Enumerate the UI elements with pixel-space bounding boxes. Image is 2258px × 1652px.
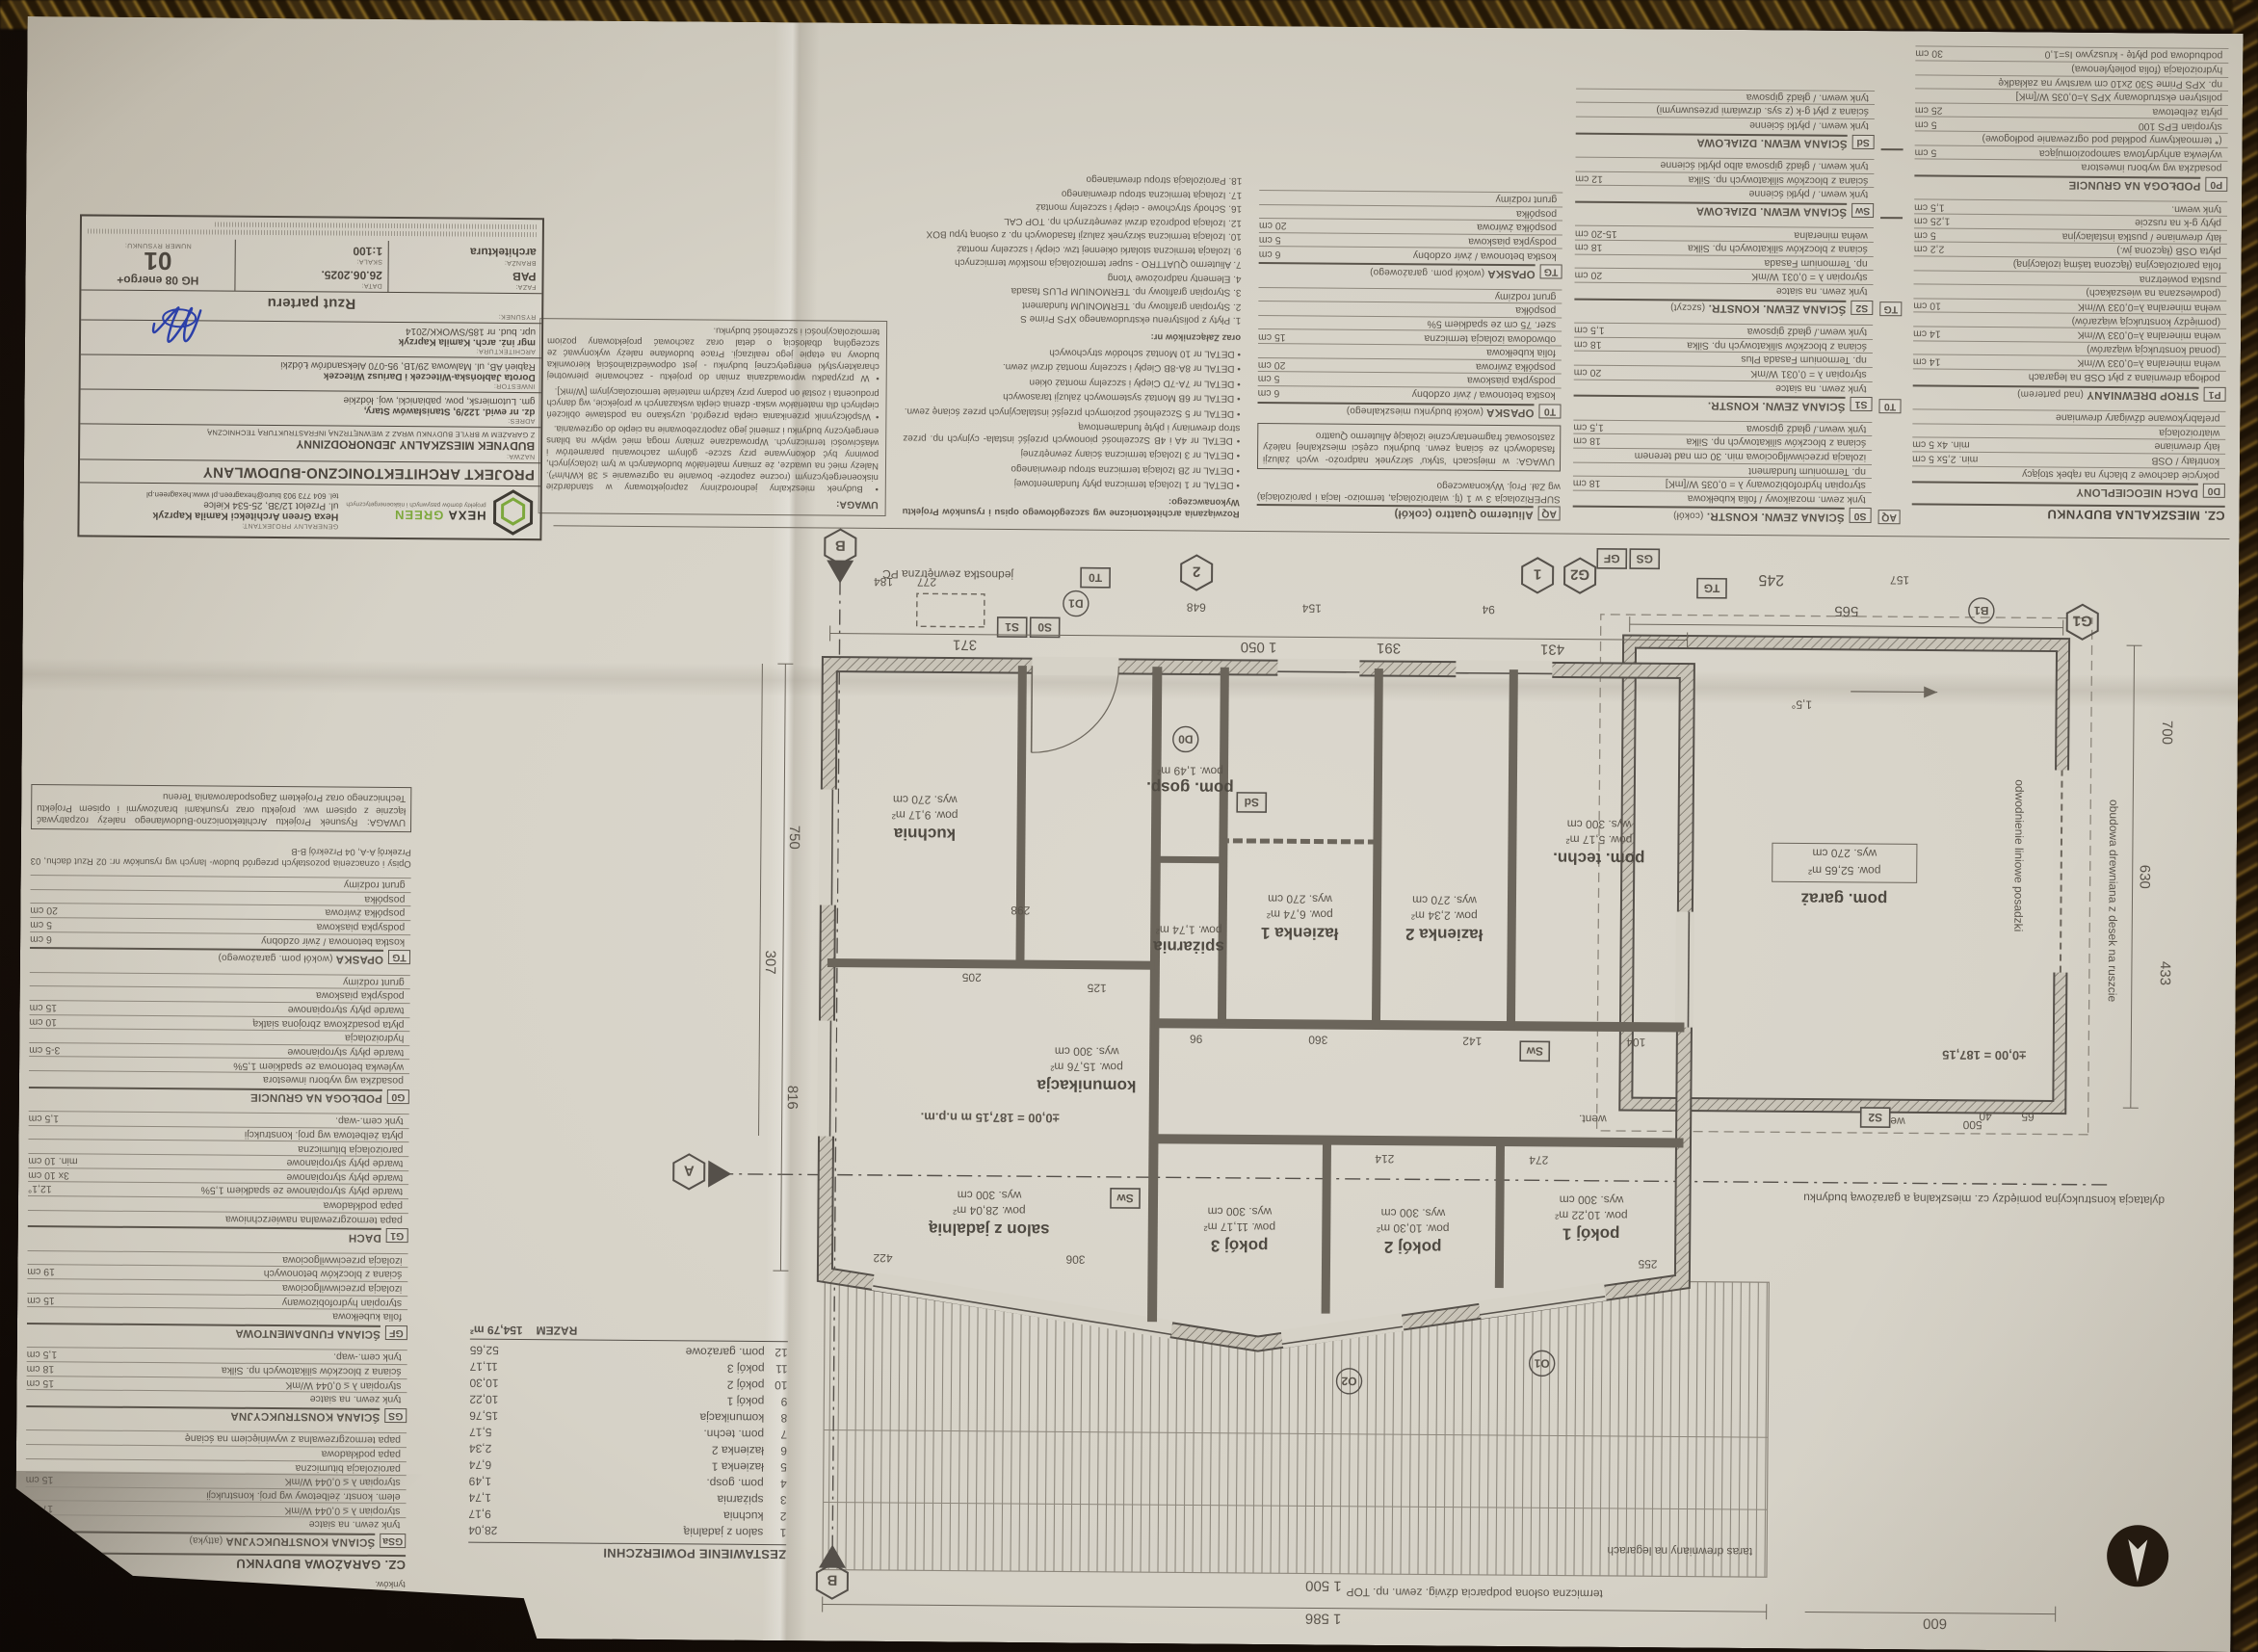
legend-tag: Sw <box>1851 203 1874 218</box>
legend-layer: hydroizolacja (folia polietylenowa) <box>1915 60 2228 76</box>
svg-text:360: 360 <box>1308 1033 1327 1046</box>
detail-item: • DETAL nr 5 Szczelność poziomych przejś… <box>903 404 1240 418</box>
table-row: 5 łazienka 1 6,74 <box>469 1457 787 1477</box>
legend-block: D0 DACH NIEOCIEPLONY pokrycie dachowe z … <box>1912 409 2226 500</box>
legend-layer: podsypka piaskowa5 cm <box>30 917 410 934</box>
svg-text:G1: G1 <box>2073 613 2092 629</box>
drawing-sheet: taras drewniany na legarach termiczna os… <box>14 16 2243 1652</box>
legend-layer: wełna mineralna15-20 cm <box>1575 225 1874 242</box>
legend-layer: podłoga drewniana z płyt OSB na legarach <box>1913 368 2226 384</box>
svg-text:GF: GF <box>1604 552 1620 565</box>
svg-text:dylatacja konstrukcyjna pomięd: dylatacja konstrukcyjna pomiędzy cz. mie… <box>1803 1192 2165 1208</box>
attachment-item: 9. Izolacja termiczna stolarki okiennej … <box>905 242 1242 256</box>
title-block: HEXA GREEN projekty domów pasywnych i ni… <box>77 214 544 540</box>
svg-text:łazienka 2: łazienka 2 <box>1405 925 1483 944</box>
legend-layer: tynk wewn.1,5 cm <box>1914 199 2227 216</box>
table-row: 11 pokój 3 11,17 <box>470 1359 788 1378</box>
svg-text:pow. 6,74 m²: pow. 6,74 m² <box>1267 907 1333 922</box>
legend-layer: pospółka żwirowa20 cm <box>1258 357 1562 374</box>
legend-layer: podsypka piaskowa5 cm <box>1258 371 1562 387</box>
svg-text:pom. techn.: pom. techn. <box>1553 849 1645 868</box>
svg-text:jednostka zewnętrzna PC: jednostka zewnętrzna PC <box>882 567 1015 582</box>
detail-notes: Rozwiązania architektoniczne wg szczegół… <box>903 170 1243 519</box>
legend-layer: styropian λ = 0,031 W/mK20 cm <box>1574 365 1873 381</box>
legend-tag: TG <box>388 950 410 964</box>
legend-ref-tag: TG <box>1879 302 1902 316</box>
attachment-item: 2. Styropian grafitowy np. TERMONIUM fun… <box>904 298 1241 312</box>
note-1: 1. Ściany należy murować zgodnie z zalec… <box>25 1604 406 1630</box>
svg-text:pom. gosp.: pom. gosp. <box>1146 778 1234 798</box>
legend-layer: tynk zewn. mozaikowy / folia kubełkowa <box>1573 489 1872 506</box>
cladding-label: obudowa drewniana z desek na ruszcie <box>2106 800 2121 1003</box>
svg-text:pokój 3: pokój 3 <box>1211 1237 1269 1255</box>
legend-layer: płyta żelbetowa25 cm <box>1915 102 2228 118</box>
legend-layer: twarde płyty styropianowemin. 10 cm <box>28 1153 408 1170</box>
dim-label: 391 <box>1377 640 1401 656</box>
svg-text:306: 306 <box>1065 1252 1085 1266</box>
legend-layer: wełna mineralna λ=0,033 W/mK14 cm <box>1913 327 2226 343</box>
table-row: 6 łazienka 2 2,34 <box>469 1441 787 1460</box>
uwaga-box: UWAGA: w miejscach 'styku' skrzynek nadp… <box>1257 423 1561 471</box>
svg-text:255: 255 <box>1638 1257 1657 1271</box>
area-table-title: ZESTAWIENIE POWIERZCHNI <box>468 1542 786 1562</box>
legend-layer: płyta OSB (łączona jw.)2,2 cm <box>1914 242 2227 258</box>
svg-text:274: 274 <box>1529 1153 1548 1167</box>
svg-text:184: 184 <box>874 575 893 589</box>
svg-text:salon z jadalnią: salon z jadalnią <box>928 1219 1049 1239</box>
legend-layer: hydroizolacja <box>29 1028 409 1045</box>
legend-layer: polistyren ekstrudowany XPS λ=0,035 W/[m… <box>1915 89 2228 105</box>
legend-layer: tynk wewn./ gładź gipsowa1,5 cm <box>1573 419 1872 435</box>
legend-layer: paroizolacja bitumiczna <box>26 1458 407 1476</box>
legend-layer: ściana z bloczków silikatowych np. Silka… <box>1573 433 1872 450</box>
legend-block: P1 STROP DREWNIANY (nad parterem) podłog… <box>1913 199 2228 403</box>
legend-block: T0 S1 ŚCIANA ZEWN. KONSTR. tynk zewn. na… <box>1573 323 1873 413</box>
legend-layer: papa termozgrzewalna z wywinięciem na śc… <box>26 1429 407 1447</box>
legend-layer: twarde płyty styropianowe3-5 cm <box>29 1042 409 1060</box>
legend-layer: folia paroizolacyjna (łączona taśmą izol… <box>1914 255 2227 272</box>
detail-item: • DETAL nr 10 Montaż schodów strychowych <box>904 344 1241 358</box>
legend-layer: ściana z bloczków silikatowych np. Silka… <box>1575 170 1874 187</box>
svg-text:648: 648 <box>1186 600 1205 614</box>
attachment-item: 7. Aliutermo QUATTRO - super termoizolac… <box>905 255 1242 270</box>
legend-block: GSa ŚCIANA KONSTRUKCYJNA (attyka) tynk z… <box>25 1429 407 1549</box>
terrace-label: taras drewniany na legarach <box>1607 1544 1752 1559</box>
meta-grid: FAZA: PAB BRANŻA: architektura DATA: 26.… <box>81 238 541 293</box>
microprint-line <box>88 228 537 237</box>
legend-layer: folia kubełkowa <box>27 1306 407 1324</box>
legend-layer: twarde płyty styropianowe ze spadkiem 1,… <box>28 1181 408 1198</box>
legend-tag: Sd <box>1852 134 1875 148</box>
legend-tag: AQ <box>1538 506 1561 520</box>
svg-text:245: 245 <box>1758 571 1784 588</box>
legend-block: Sd ŚCIANA WEWN. DZIAŁOWA tynk wewn. / pł… <box>1576 88 1875 150</box>
legend-tag: S0 <box>1850 508 1872 522</box>
dim-label: 307 <box>762 950 778 974</box>
level-marker-garage: ±0,00 = 187,15 <box>1942 1048 2026 1063</box>
legend-block: G1 DACH papa termozgrzewalna nawierzchni… <box>28 1111 409 1245</box>
dim-label: 600 <box>1923 1614 1947 1631</box>
svg-text:wys. 300 cm: wys. 300 cm <box>1055 1044 1120 1059</box>
svg-text:spiżarnia: spiżarnia <box>1153 937 1224 957</box>
section-title: CZ. GARAŻOWA BUDYNKU <box>25 1552 406 1572</box>
legend-layer: tynk zewn. na siatce <box>1574 379 1873 395</box>
svg-text:G2: G2 <box>1570 566 1589 583</box>
legend-block: P0 PODŁOGA NA GRUNCIE posadzka wg wyboru… <box>1914 46 2228 194</box>
dim-label: 1 050 <box>1241 639 1277 655</box>
legend-layer: wylewka anhydrytowa samopoziomująca5 cm <box>1915 144 2228 161</box>
legend-ref-tag: T0 <box>1878 399 1901 413</box>
svg-text:pow. 9,17 m²: pow. 9,17 m² <box>892 808 958 823</box>
legend-layer: styropian λ = 0,031 W/mK20 cm <box>1575 268 1874 284</box>
legend-layer: np. Termonium fundament <box>1573 461 1872 478</box>
svg-text:wys. 300 cm: wys. 300 cm <box>1381 1206 1447 1220</box>
legend-layer: (ponad konstrukcją wiązarów) <box>1913 340 2226 356</box>
svg-text:pow. 2,34 m²: pow. 2,34 m² <box>1411 908 1478 923</box>
legend-layer: izolacja przeciwwilgociowa min. 30 cm na… <box>1573 448 1872 464</box>
detail-item: • DETAL nr 7A-7D Ciepły i szczelny monta… <box>904 374 1241 388</box>
svg-text:94: 94 <box>1482 603 1495 616</box>
legend-layer: wełna mineralna λ=0,033 W/mK10 cm <box>1913 298 2226 314</box>
legend-block: AQ S0 ŚCIANA ZEWN. KONSTR. (cokół) tynk … <box>1573 419 1873 524</box>
svg-text:500: 500 <box>1962 1118 1982 1132</box>
svg-text:157: 157 <box>1890 573 1909 587</box>
legend-layer: wiatroizolacja <box>1912 423 2225 439</box>
table-row: 10 pokój 2 10,30 <box>469 1376 787 1395</box>
legend-layer: posadzka wg wyboru inwestora <box>1914 159 2227 175</box>
legend-opaska: AQ Aliutermo Quattro (cokół) SUPERizolac… <box>1257 181 1563 521</box>
legend-layer: ściana z bloczków betonowych19 cm <box>27 1264 407 1281</box>
legend-layer: szer. 75 cm ze spadkiem 5% <box>1258 315 1562 331</box>
legend-layer: grunt rodzimy <box>31 875 411 892</box>
dim-label: 1 500 <box>1305 1577 1342 1593</box>
slope-arrow <box>1851 686 1937 698</box>
legend-tag: T0 <box>1538 404 1561 418</box>
svg-text:B1: B1 <box>1974 604 1989 617</box>
svg-text:T0: T0 <box>1089 571 1102 585</box>
uwaga-notes: UWAGA: • Budynek mieszkalny jednorodzinn… <box>538 318 888 516</box>
opisy-note: Opisy i oznaczenia pozostałych przegród … <box>31 843 411 869</box>
legend-layer: tynk zewn. na siatce <box>25 1514 406 1532</box>
note-paragraph: • Budynek mieszkalny jednorodzinny zapro… <box>546 423 880 494</box>
svg-text:pow. 10,30 m²: pow. 10,30 m² <box>1377 1221 1449 1236</box>
svg-text:422: 422 <box>873 1251 892 1265</box>
general-designer-row: HEXA GREEN projekty domów pasywnych i ni… <box>79 482 539 538</box>
legend-layer: tynk wewn. / płytki ścienne <box>1576 117 1875 133</box>
dimension-chain-top <box>823 1597 2056 1622</box>
svg-text:214: 214 <box>1375 1152 1394 1166</box>
legend-block: GF ŚCIANA FUNDAMENTOWA folia kubełkowa s… <box>27 1250 408 1342</box>
area-table-rows: 1 salon z jadalnią 28,04 2 kuchnia 9,17 … <box>468 1343 788 1542</box>
svg-text:S2: S2 <box>1868 1111 1882 1124</box>
svg-text:wys. 300 cm: wys. 300 cm <box>958 1189 1023 1203</box>
svg-text:GS: GS <box>1637 552 1653 565</box>
hexa-green-logo: HEXA GREEN projekty domów pasywnych i ni… <box>346 488 535 537</box>
legend-layer: łaty drewnianemin. 4x 5 cm <box>1912 437 2225 454</box>
heat-pump-unit: jednostka zewnętrzna PC <box>881 567 1014 627</box>
legend-layer: pustka powietrzna <box>1914 270 2227 286</box>
titleblock-uwaga-note: UWAGA: Rysunek Projektu Architektoniczno… <box>31 784 411 833</box>
detail-item: • DETAL nr 1 Izolacja termiczna płyty fu… <box>903 476 1240 490</box>
legend-residential: CZ. MIESZKALNA BUDYNKU D0 DACH NIEOCIEPL… <box>1912 38 2229 527</box>
attachment-item: 17. Izolacja termiczna stropu drewnianeg… <box>905 186 1242 200</box>
legend-layer: podsypka piaskowa <box>30 985 410 1003</box>
legend-layer: np. XPS Prime S30 2x10 cm warstwy na zak… <box>1915 74 2228 91</box>
legend-block: GS ŚCIANA KONSTRUKCYJNA tynk zewn. na si… <box>26 1347 407 1424</box>
dim-label: 431 <box>1540 641 1564 657</box>
detail-item: • DETAL nr 3 Izolacja termiczna ściany z… <box>903 446 1240 460</box>
microprint-line <box>214 223 537 230</box>
table-row: 1 salon z jadalnią 28,04 <box>468 1523 786 1542</box>
legend-ref-tag <box>1880 218 1903 220</box>
attachment-item: 4. Elementy nadprożowe Ytong <box>905 270 1242 284</box>
legend-layer: styropian hydrofobizowany15 cm <box>27 1293 407 1310</box>
svg-text:wys. 270 cm: wys. 270 cm <box>1268 892 1333 906</box>
legend-layer: posadzka wg wyboru inwestora <box>29 1070 409 1088</box>
expansion-joint-note: dylatacja konstrukcyjna pomiędzy cz. mie… <box>1803 1192 2165 1208</box>
legend-tag: GF <box>385 1325 407 1340</box>
legend-layer: pospółka <box>1259 204 1562 221</box>
name-row: NAZWA: BUDYNEK MIESZKALNY JEDNORODZINNY … <box>80 423 540 462</box>
legend-layer: pospółka <box>30 889 410 906</box>
legend-layer: papa termozgrzewalna nawierzchniowa <box>28 1210 408 1227</box>
legend-layer: tynk wewn. / płytki ścienne <box>1575 185 1874 201</box>
attachment-item: 3. Styropian grafitowy np. TERMONIUM PLU… <box>904 283 1241 298</box>
legend-layer: podbudowa pod płytę - kruszywo Is=1,030 … <box>1915 46 2228 63</box>
detail-item: • DETAL nr 4A i 4B Szczelność pionowych … <box>903 419 1240 446</box>
legend-layer: np. Termonium Fasada <box>1575 253 1874 270</box>
legend-layer: płyty g-k na ruszcie1,25 cm <box>1914 214 2227 230</box>
faza-cell: FAZA: PAB BRANŻA: architektura <box>388 241 542 293</box>
section-marker-b-bottom: B <box>825 530 855 584</box>
field-label: GENERALNY PROJEKTANT: <box>85 521 338 530</box>
legend-layer: izolacja przeciwwilgociowa <box>27 1278 407 1296</box>
attachment-item: 12. Izolacja podproża drzwi zewnętrznych… <box>905 214 1242 228</box>
svg-text:Sw: Sw <box>1116 1192 1134 1205</box>
legend-layer: paroizolacja bitumiczna <box>28 1140 408 1157</box>
svg-text:A: A <box>684 1162 695 1178</box>
legend-layer: styropian λ ≤ 0,044 W/mK15 cm <box>26 1376 407 1393</box>
detail-item: • DETAL nr 8A-8B Ciepły i szczelny monta… <box>904 359 1241 374</box>
area-table-total: RAZEM 154,79 m² <box>470 1324 788 1343</box>
table-row: 7 pom. techn. 5,17 <box>469 1425 787 1444</box>
dim-label: 371 <box>953 637 977 653</box>
dim-label: 565 <box>1834 603 1858 619</box>
room-area: pow. 52,65 m² <box>1808 864 1880 878</box>
svg-text:pow. 1,74 m²: pow. 1,74 m² <box>1156 923 1222 937</box>
legend-layer: ściana z płyt g-k (z sys. drzwiami przes… <box>1576 102 1875 118</box>
table-row: 3 spiżarnia 1,74 <box>468 1490 786 1509</box>
svg-text:1: 1 <box>1534 565 1541 582</box>
legend-tag: GSa <box>380 1534 406 1548</box>
table-row: 9 pokój 1 10,22 <box>469 1392 787 1411</box>
svg-text:wys. 300 cm: wys. 300 cm <box>1208 1205 1273 1219</box>
architect-row: ARCHITEKTURA: mgr inż. arch. Kamila Kapr… <box>81 319 541 357</box>
svg-text:142: 142 <box>1462 1035 1482 1048</box>
attachment-item: 10. Izolacja termiczna skrzynek żaluzji … <box>905 227 1242 242</box>
svg-text:205: 205 <box>961 971 981 984</box>
svg-text:kuchnia: kuchnia <box>893 825 956 844</box>
legend-layer: grunt rodzimy <box>30 972 410 989</box>
drain-label: odwodnienie liniowe posadzki <box>2011 779 2026 931</box>
svg-text:wys. 270 cm: wys. 270 cm <box>893 793 958 807</box>
legend-tag: TG <box>1540 264 1562 278</box>
area-table: ZESTAWIENIE POWIERZCHNI 1 salon z jadaln… <box>468 1324 788 1562</box>
svg-text:B: B <box>835 538 846 554</box>
legend-layer: kostka betonowa / żwir ozdobny6 cm <box>30 931 410 949</box>
legend-tag: P1 <box>2204 386 2226 401</box>
legend-layer: tynk zewn. na siatce <box>1574 282 1873 299</box>
legend-layer: kontrłaty / OSBmin. 2,5x 5 cm <box>1912 451 2225 467</box>
dim-label: 816 <box>784 1086 801 1110</box>
legend-layer: izolacja przeciwwilgociowa <box>27 1250 407 1268</box>
legend-layer: ściana z bloczków silikatowych np. Silka… <box>27 1361 407 1378</box>
legend-layer: tynk cem.-wap.1,5 cm <box>29 1111 409 1128</box>
section-title: CZ. MIESZKALNA BUDYNKU <box>1912 503 2225 523</box>
section-line-a <box>720 1174 2107 1185</box>
svg-text:pokój 2: pokój 2 <box>1384 1238 1442 1256</box>
legend-layer: styropian hydrofobizowany λ = 0,035 W/[m… <box>1573 476 1872 492</box>
svg-text:wys. 300 cm: wys. 300 cm <box>1567 818 1633 832</box>
svg-text:104: 104 <box>1626 1036 1645 1049</box>
legend-layer: płyta żelbetowa wg proj. konstrukcji <box>28 1125 408 1142</box>
dim-label: 700 <box>2159 721 2175 745</box>
legend-layer: twarde płyty styropianowe15 cm <box>29 1000 409 1017</box>
legend-layer: (pomiędzy konstrukcją wiązarów) <box>1913 312 2226 328</box>
attachment-item: 18. Paroizolacja stropu drewnianego <box>905 171 1242 186</box>
note-paragraph: • W przypadku wprowadzania zmian do proj… <box>547 324 880 383</box>
legend-layer: tynk wewn. / gładź gipsowa <box>1576 88 1875 104</box>
microprint-row <box>82 216 542 242</box>
svg-text:S1: S1 <box>1005 620 1019 634</box>
svg-text:O1: O1 <box>1534 1356 1549 1370</box>
svg-text:pokój 1: pokój 1 <box>1562 1225 1620 1244</box>
dim-label: 630 <box>2137 865 2153 889</box>
legend-layer: pokrycie dachowe z blachy na rąbek stoją… <box>1912 465 2225 482</box>
svg-text:65: 65 <box>2021 1110 2035 1123</box>
legend-layer: styropian λ ≤ 0,044 W/mK17 cm <box>25 1501 406 1518</box>
legend-layer: tynk zewn. na siatce <box>26 1389 407 1406</box>
legend-layer: pospółka <box>1258 301 1562 317</box>
svg-text:pow. 28,04 m²: pow. 28,04 m² <box>953 1204 1025 1219</box>
room-name: pom. garaż <box>1801 889 1888 908</box>
legend-layer: pospółka żwirowa20 cm <box>1259 218 1562 234</box>
svg-text:S0: S0 <box>1037 620 1052 634</box>
hexagon-logo-icon <box>491 489 534 536</box>
note-2: 2. Przedstawione wymiary przegród wewnęt… <box>25 1576 406 1602</box>
detail-item: • DETAL nr 2B Izolacja termiczna stropu … <box>903 460 1240 475</box>
attachment-item: 16. Schody strychowe - ciepły i szczelny… <box>905 199 1242 214</box>
legend-layer: płyta posadzkowa zbrojona siatką10 cm <box>29 1014 409 1032</box>
legend-layer: ściana z bloczków silikatowych np. Silka… <box>1575 240 1874 256</box>
vent-label-2: went. <box>1579 1113 1608 1126</box>
room-height: wys. 270 cm <box>1812 847 1877 861</box>
svg-text:pow. 15,76 m²: pow. 15,76 m² <box>1050 1060 1122 1074</box>
legend-layer: tynk wewn. / gładź gipsowa albo płytki ś… <box>1575 157 1874 173</box>
legend-walls: AQ S0 ŚCIANA ZEWN. KONSTR. (cokół) tynk … <box>1573 79 1876 524</box>
note-paragraph: • Współczynnik przenikania ciepła przegr… <box>546 384 879 421</box>
svg-text:B: B <box>827 1572 837 1588</box>
legend-block: TG OPASKA (wokół pom. garażowego) kostka… <box>1259 190 1563 280</box>
photo-of-drawing: { "colors":{"paper":"#d6d2c7","ink":"#56… <box>0 0 2258 1651</box>
legend-layer: np. Termonium Fasada Plus <box>1574 351 1873 367</box>
svg-text:pow. 1,49 m²: pow. 1,49 m² <box>1157 764 1223 778</box>
svg-text:pow. 5,17 m²: pow. 5,17 m² <box>1566 833 1633 848</box>
svg-text:wys. 270 cm: wys. 270 cm <box>1412 893 1478 907</box>
detail-item: • DETAL nr 6B Montaż systemowych żaluzji… <box>904 389 1241 404</box>
legend-ref-tag: AQ <box>1878 510 1901 524</box>
legend-block: TG OPASKA (wokół pom. garażowego) kostka… <box>30 875 411 966</box>
dim-label: 433 <box>2157 961 2173 985</box>
data-cell: DATA: 26.06.2025. SKALA: 1:100 <box>234 240 388 292</box>
svg-text:D1: D1 <box>1068 596 1084 610</box>
legend-block: G0 PODŁOGA NA GRUNCIE posadzka wg wyboru… <box>29 972 410 1106</box>
legend-layer: wełna mineralna λ=0,033 W/mK14 cm <box>1913 354 2226 371</box>
legend-block: T0 OPASKA (wokół budynku mieszkalnego) k… <box>1257 287 1562 420</box>
legend-tag: G0 <box>387 1089 409 1104</box>
svg-text:O2: O2 <box>1341 1375 1356 1388</box>
svg-text:298: 298 <box>1011 904 1030 917</box>
dim-label: 1 586 <box>1305 1610 1342 1626</box>
address-row: ADRES: dz. nr ewid. 122/9, Stanisławów S… <box>80 388 540 427</box>
svg-text:125: 125 <box>1087 982 1106 995</box>
dim-label: 750 <box>786 826 802 850</box>
legend-tag: S2 <box>1851 300 1873 314</box>
legend-layer: twarde płyty styropianowe3x 10 cm <box>28 1167 408 1185</box>
legend-tag: S1 <box>1850 397 1872 411</box>
attachment-item: 1. Płyty z polistyrenu ekstrudowanego XP… <box>904 311 1241 326</box>
legend-tag: GS <box>384 1408 407 1423</box>
legend-ref-tag <box>1881 148 1904 150</box>
number-cell: HG 08 energo+ 01 NUMER RYSUNKU: <box>81 238 234 290</box>
svg-text:pow. 10,22 m²: pow. 10,22 m² <box>1555 1208 1627 1222</box>
table-row: 8 komunikacja 15,76 <box>469 1408 787 1428</box>
svg-text:154: 154 <box>1301 601 1321 615</box>
svg-text:±0,00 = 187,15 m n.p.m.: ±0,00 = 187,15 m n.p.m. <box>921 1110 1060 1125</box>
north-arrow-icon <box>2107 1525 2169 1587</box>
legend-layer: grunt rodzimy <box>1258 287 1562 303</box>
svg-text:TG: TG <box>1704 582 1720 595</box>
legend-layer: styropian λ ≤ 0,044 W/mK15 cm <box>26 1472 407 1489</box>
legend-layer: (podwieszana na wieszakach) <box>1913 284 2226 301</box>
legend-block-aq: AQ Aliutermo Quattro (cokół) SUPERizolac… <box>1257 478 1561 522</box>
svg-text:2: 2 <box>1193 564 1200 580</box>
table-row: 2 kuchnia 9,17 <box>468 1507 786 1526</box>
support-shield-label: termiczna osłona podparcia dźwig. zewn. … <box>1346 1586 1602 1601</box>
legend-layer: papa podkładowa <box>26 1444 407 1461</box>
legend-layer: (* termoaktywny podkład pod ogrzewanie p… <box>1915 131 2228 147</box>
svg-text:Sw: Sw <box>1526 1044 1543 1058</box>
legend-block: TG S2 ŚCIANA ZEWN. KONSTR. (szczyt) tynk… <box>1574 225 1874 316</box>
legend-layer: kostka betonowa / żwir ozdobny6 cm <box>1258 385 1562 402</box>
svg-text:wys. 300 cm: wys. 300 cm <box>1560 1193 1625 1208</box>
legend-layer: papa podkładowa <box>28 1195 408 1213</box>
svg-text:pow. 11,17 m²: pow. 11,17 m² <box>1203 1220 1275 1235</box>
table-row: 4 pom. gosp. 1,49 <box>469 1474 787 1493</box>
svg-text:D0: D0 <box>1178 732 1194 746</box>
table-row: 12 pom. garażowe 52,65 <box>470 1343 788 1362</box>
legend-layer: podsypka piaskowa5 cm <box>1259 232 1562 249</box>
legend-layer: prefabrykowane dźwigary drewniane <box>1912 409 2225 426</box>
drawing-title-row: RYSUNEK: Rzut parteru <box>81 289 541 323</box>
svg-text:Sd: Sd <box>1245 796 1259 809</box>
room-labels: pokój 1 pow. 10,22 m² wys. 300 cm pokój … <box>888 762 1645 1258</box>
svg-text:łazienka 1: łazienka 1 <box>1261 924 1338 943</box>
legend-layer: styropian EPS 1005 cm <box>1915 117 2228 133</box>
svg-text:277: 277 <box>917 575 936 589</box>
svg-text:96: 96 <box>1190 1032 1203 1045</box>
svg-text:komunikacja: komunikacja <box>1037 1076 1137 1095</box>
